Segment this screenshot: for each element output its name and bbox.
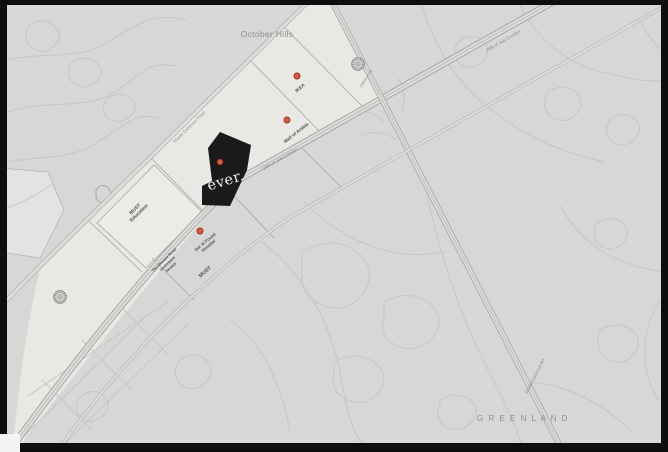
map-screenshot: ever. IKEA Mall of Arabia Dar Al Fouad H… — [0, 0, 668, 452]
map-marker-dar-al-fouad[interactable] — [197, 228, 203, 234]
interchange-icon-north — [352, 58, 365, 71]
interchange-icon-west — [54, 291, 67, 304]
map-marker-ikea[interactable] — [294, 73, 300, 79]
map-marker-mall-of-arabia[interactable] — [284, 117, 290, 123]
map-canvas[interactable]: ever. IKEA Mall of Arabia Dar Al Fouad H… — [0, 0, 668, 452]
frame-corner-highlight — [0, 434, 20, 452]
area-label-greenland: G R E E N L A N D — [477, 414, 569, 423]
site-marker[interactable] — [217, 159, 223, 165]
area-label-october-hills: October Hills — [241, 29, 294, 39]
